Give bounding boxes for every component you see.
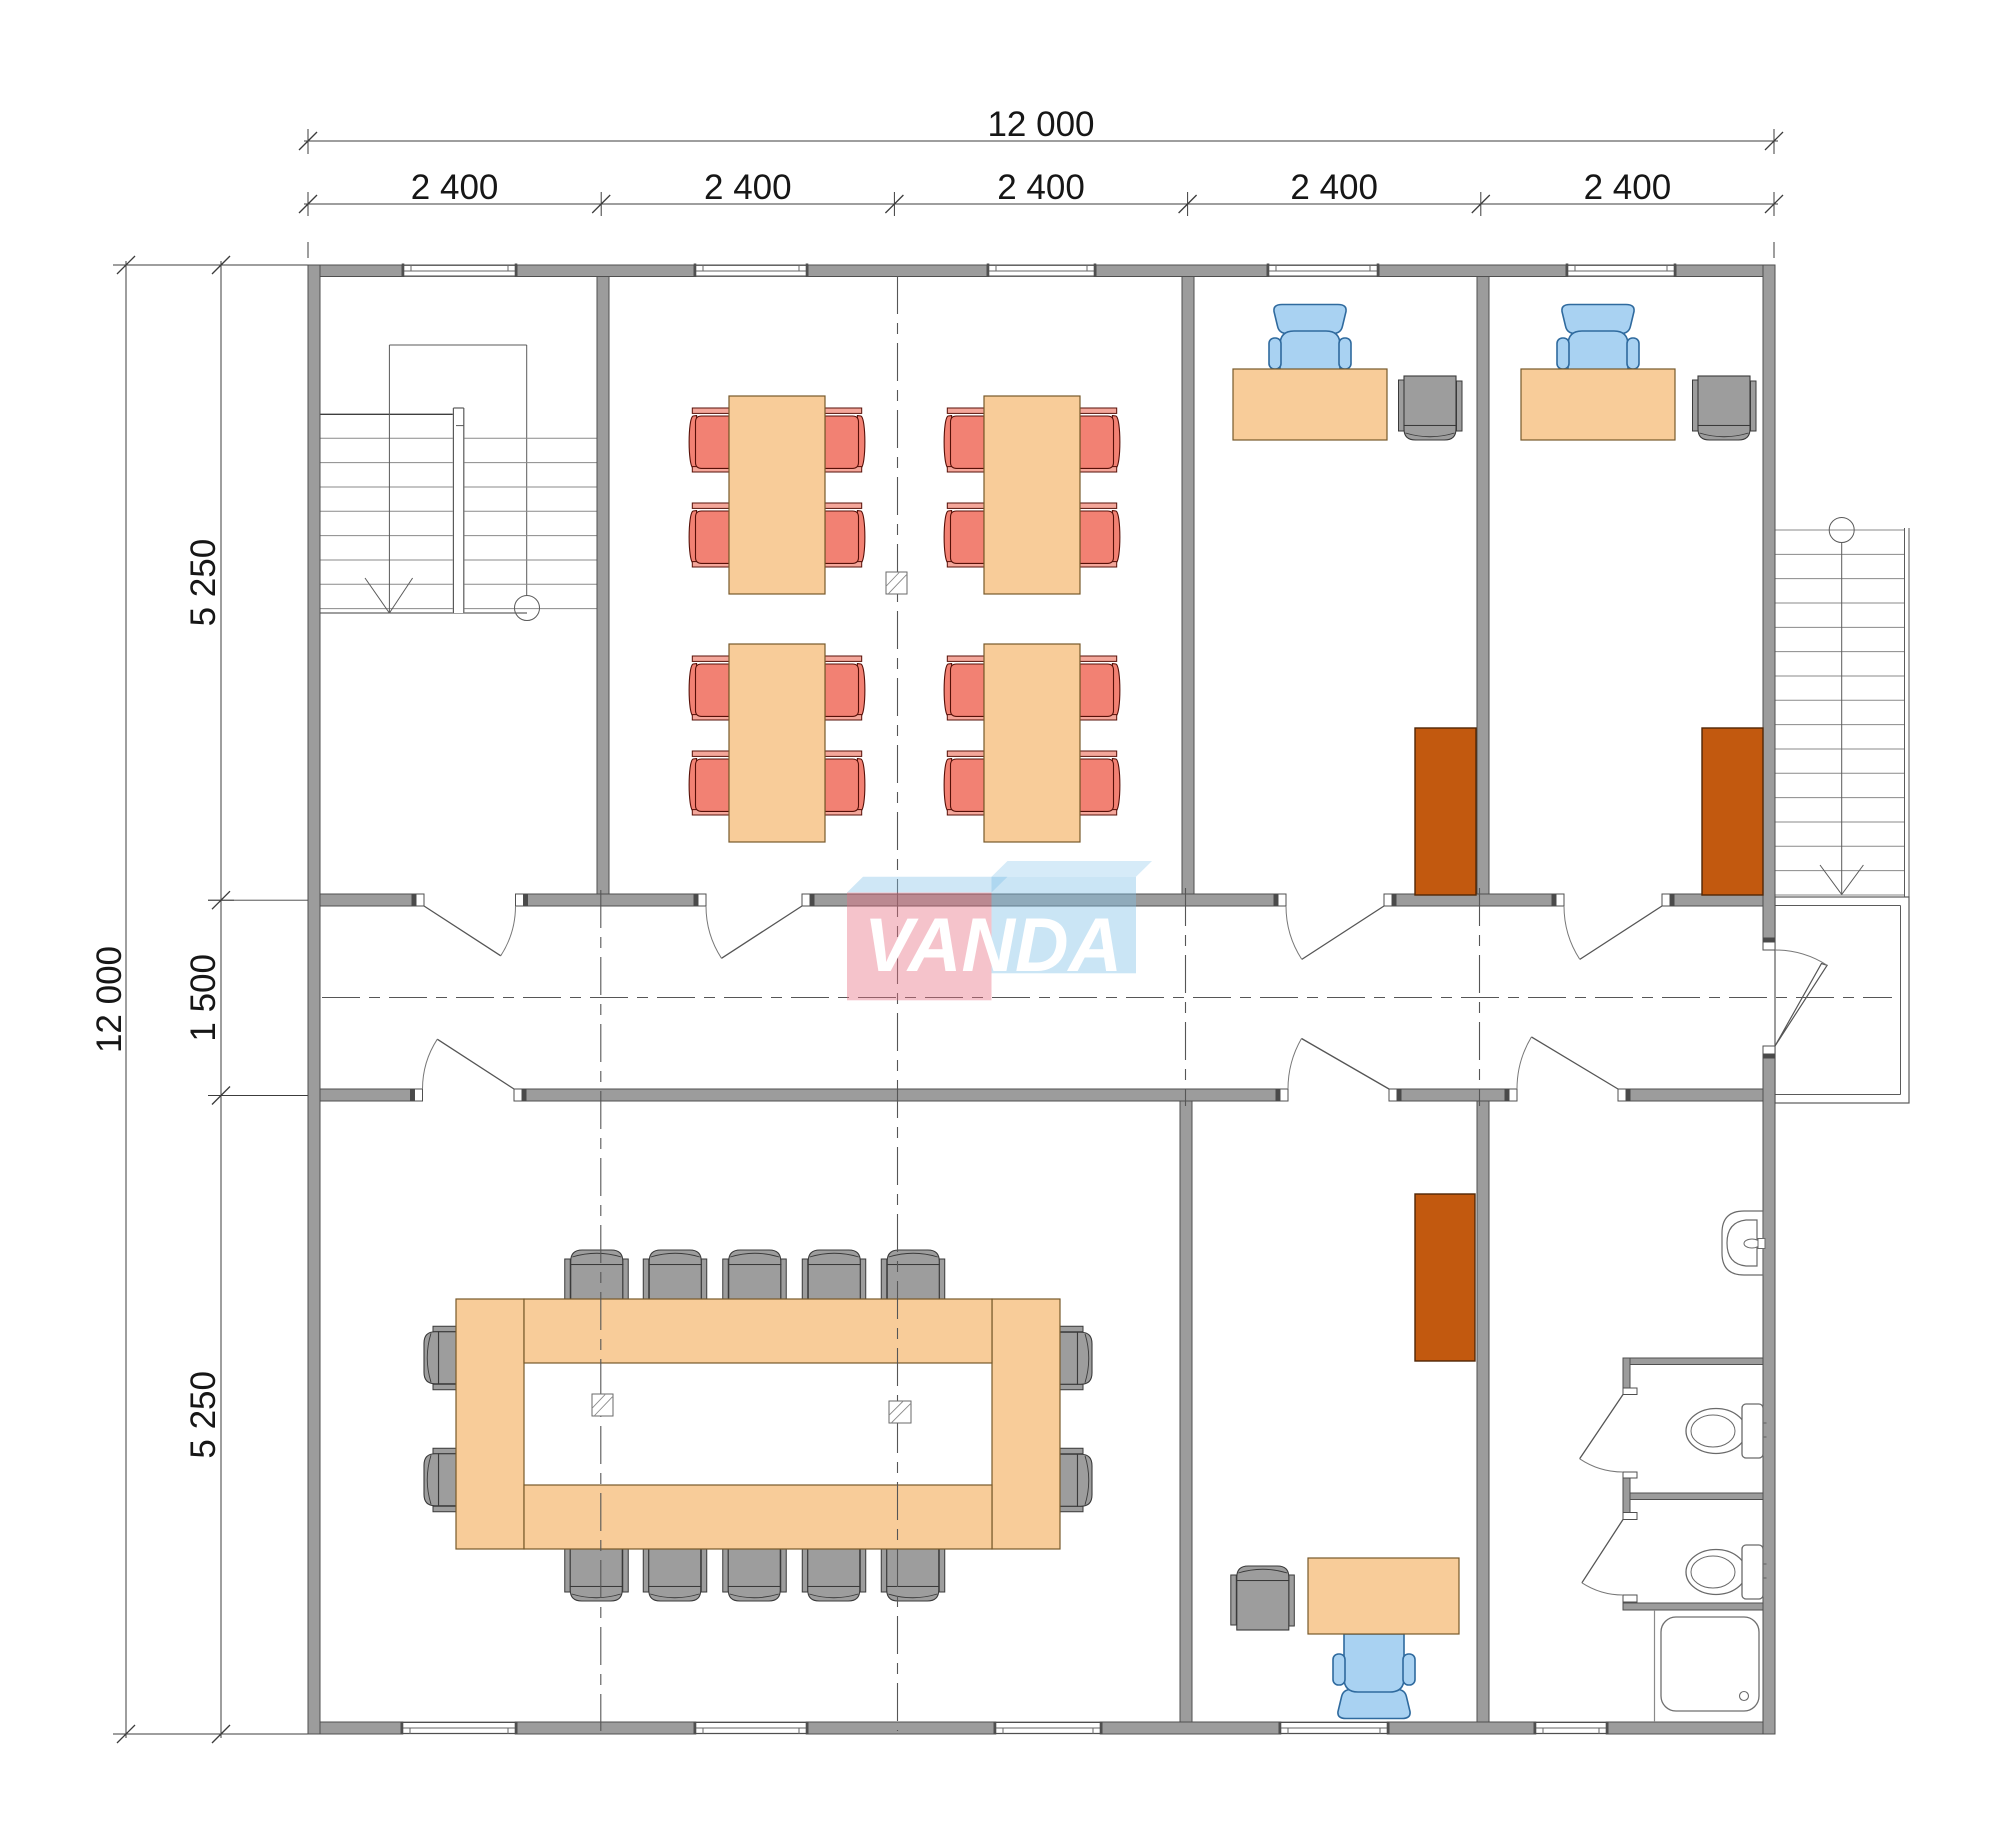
svg-text:VANDA: VANDA [864, 903, 1122, 988]
svg-text:12 000: 12 000 [987, 105, 1094, 144]
svg-text:2 400: 2 400 [411, 168, 499, 207]
svg-text:2 400: 2 400 [997, 168, 1085, 207]
svg-text:2 400: 2 400 [1584, 168, 1672, 207]
svg-text:2 400: 2 400 [1290, 168, 1378, 207]
svg-text:2 400: 2 400 [704, 168, 792, 207]
svg-text:1 500: 1 500 [184, 954, 223, 1042]
svg-text:5 250: 5 250 [184, 1371, 223, 1459]
svg-text:12 000: 12 000 [90, 946, 129, 1053]
svg-text:5 250: 5 250 [184, 539, 223, 627]
